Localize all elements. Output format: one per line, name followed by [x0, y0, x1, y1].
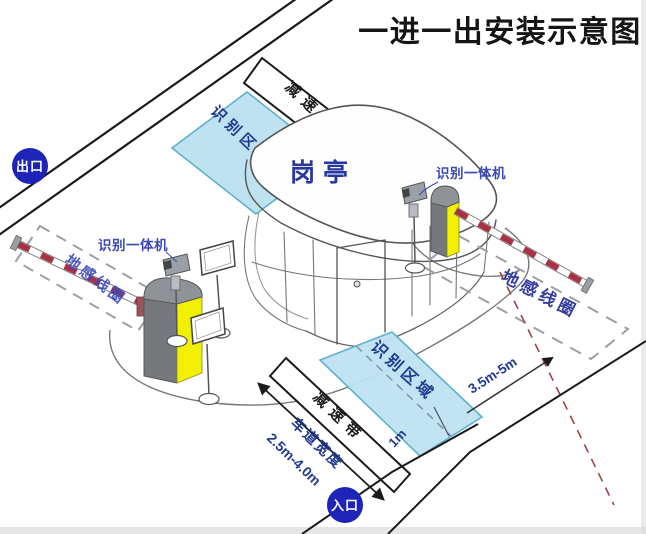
exit-badge: 出口: [12, 148, 48, 184]
scan-edge-bottom: [0, 527, 646, 534]
booth-door-knob: [354, 281, 360, 287]
diagram-title: 一进一出安装示意图: [358, 15, 642, 49]
camera-left-label: 识别一体机: [98, 237, 168, 253]
booth-label: 岗亭: [290, 158, 356, 187]
entrance-badge-label: 入口: [331, 498, 359, 513]
entrance-badge: 入口: [327, 487, 363, 523]
exit-badge-label: 出口: [16, 159, 44, 174]
barrier-gate-right: [431, 186, 459, 257]
installation-diagram: 一进一出安装示意图 减速带 识别区域 地感线圈: [0, 0, 646, 534]
scan-edge-right: [641, 0, 646, 534]
camera-right-label: 识别一体机: [436, 165, 506, 181]
